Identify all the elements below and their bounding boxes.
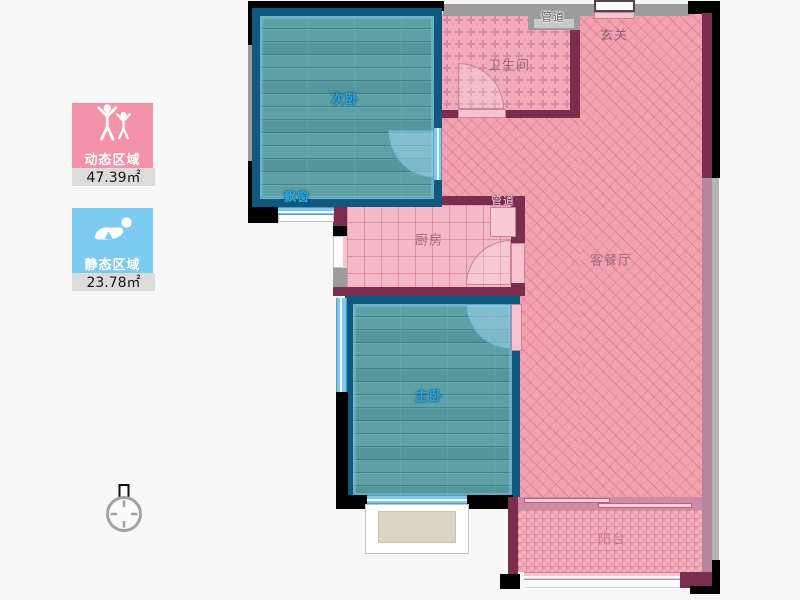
label-secondary-bedroom: 次卧 <box>331 94 359 107</box>
window-bay-outer <box>278 215 334 222</box>
door-bathroom-sill <box>458 109 506 118</box>
wall-balcony-corner-black <box>690 586 720 594</box>
wall-kitchen-bottom <box>333 287 525 296</box>
window-kitchen-left-sill <box>343 236 347 268</box>
wall-right-maroon <box>702 13 712 178</box>
wall-master-left-black <box>336 392 348 509</box>
wall-master-bottom-black-right <box>467 495 513 509</box>
wall-balcony-left <box>508 497 518 583</box>
page: { "legend": { "items": [ { "id": "dynami… <box>0 0 800 600</box>
label-balcony: 阳台 <box>598 534 626 547</box>
entrance-door-leaf <box>594 0 635 12</box>
wall-top-gray-right <box>635 4 690 16</box>
duct-kitchen-shaft <box>490 207 516 237</box>
wall-balcony-bl-black <box>500 574 520 589</box>
label-kitchen: 厨房 <box>415 235 443 248</box>
door-kitchen-sill <box>511 243 525 285</box>
window-master-left <box>336 298 347 392</box>
wall-right-gray-outer <box>712 178 719 560</box>
label-duct-top: 管道 <box>541 12 565 23</box>
window-master-bottom <box>367 495 467 504</box>
window-balcony-outer <box>524 580 680 588</box>
floor-plan: 次卧 飘窗 卫生间 管道 玄关 厨房 管道 客餐厅 主卧 阳台 <box>0 0 800 600</box>
wall-master-bottom-black-left <box>337 495 368 509</box>
label-living-dining: 客餐厅 <box>590 255 632 268</box>
door-master-sill <box>511 304 522 351</box>
label-bathroom: 卫生间 <box>488 60 530 73</box>
entrance-door-sill <box>594 12 635 19</box>
label-entry: 玄关 <box>600 30 628 43</box>
wall-right-mauve <box>702 178 712 578</box>
wall-kitchen-left-black <box>333 226 347 236</box>
label-master-bedroom: 主卧 <box>415 391 443 404</box>
label-bay-window: 飘窗 <box>284 191 310 203</box>
room-secondary-bedroom[interactable] <box>252 8 442 207</box>
wall-right-black <box>712 14 720 178</box>
room-living-strip[interactable] <box>520 112 580 500</box>
slider-balcony-leaf-2 <box>598 503 692 508</box>
wall-secondary-bottom-black <box>248 207 278 223</box>
window-balcony-bottom <box>524 572 680 580</box>
label-duct-kitchen: 管道 <box>491 196 515 207</box>
bay-window-master-inner <box>378 511 456 543</box>
window-bay-secondary <box>278 207 334 215</box>
door-secondary-sill <box>433 128 442 180</box>
